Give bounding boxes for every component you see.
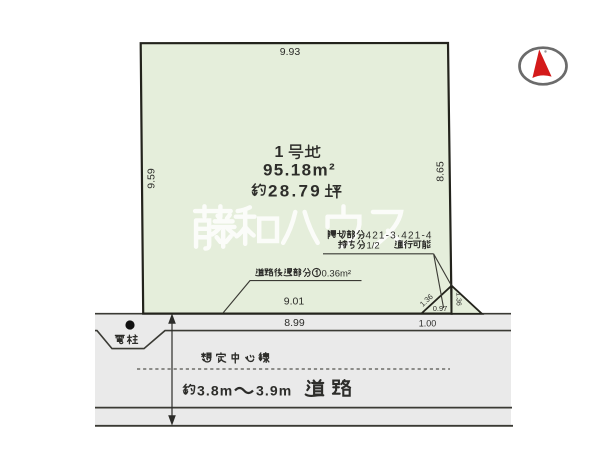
svg-text:8.65: 8.65 bbox=[435, 161, 447, 182]
svg-text:3.9m: 3.9m bbox=[256, 383, 292, 399]
svg-text:9.93: 9.93 bbox=[280, 46, 301, 58]
svg-text:9.01: 9.01 bbox=[284, 296, 305, 308]
svg-text:95.18m²: 95.18m² bbox=[263, 161, 336, 180]
svg-text:9.59: 9.59 bbox=[146, 168, 158, 189]
svg-text:1/2: 1/2 bbox=[367, 241, 380, 252]
svg-text:1: 1 bbox=[275, 144, 284, 161]
svg-text:28.79: 28.79 bbox=[268, 182, 322, 201]
svg-text:0.36m²: 0.36m² bbox=[322, 269, 352, 280]
svg-text:8.99: 8.99 bbox=[284, 317, 305, 329]
svg-text:0.97: 0.97 bbox=[433, 304, 448, 313]
svg-text:1.36: 1.36 bbox=[455, 292, 462, 306]
svg-text:3.8m: 3.8m bbox=[197, 383, 233, 399]
svg-text:1.00: 1.00 bbox=[419, 319, 437, 329]
